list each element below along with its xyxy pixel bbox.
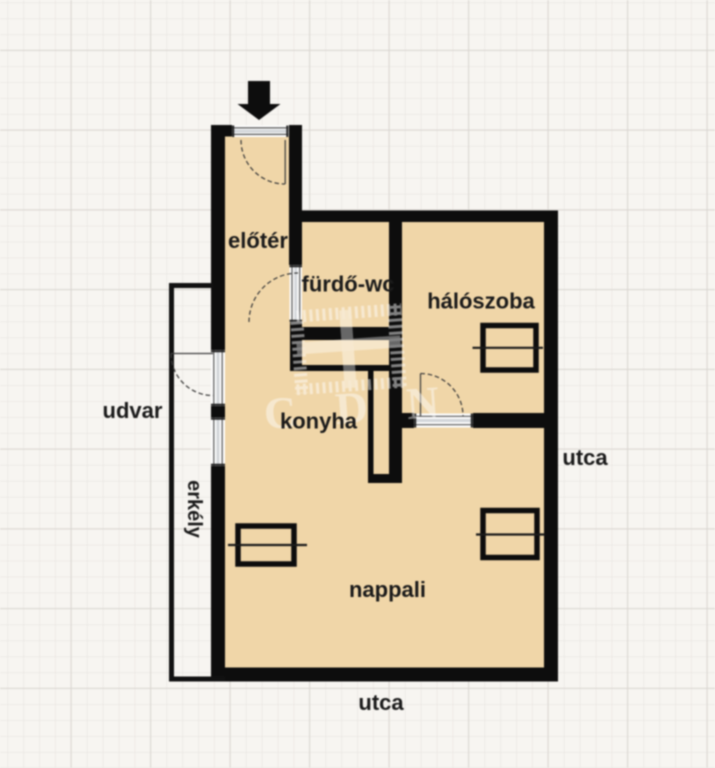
svg-text:nappali: nappali (349, 577, 426, 602)
svg-text:konyha: konyha (280, 409, 358, 434)
svg-text:utca: utca (562, 445, 608, 470)
svg-text:hálószoba: hálószoba (427, 289, 535, 314)
svg-text:erkély: erkély (183, 480, 205, 539)
svg-text:udvar: udvar (103, 398, 163, 423)
svg-text:utca: utca (358, 690, 404, 715)
svg-text:előtér: előtér (228, 228, 288, 253)
svg-text:fürdő-wc: fürdő-wc (302, 272, 395, 297)
